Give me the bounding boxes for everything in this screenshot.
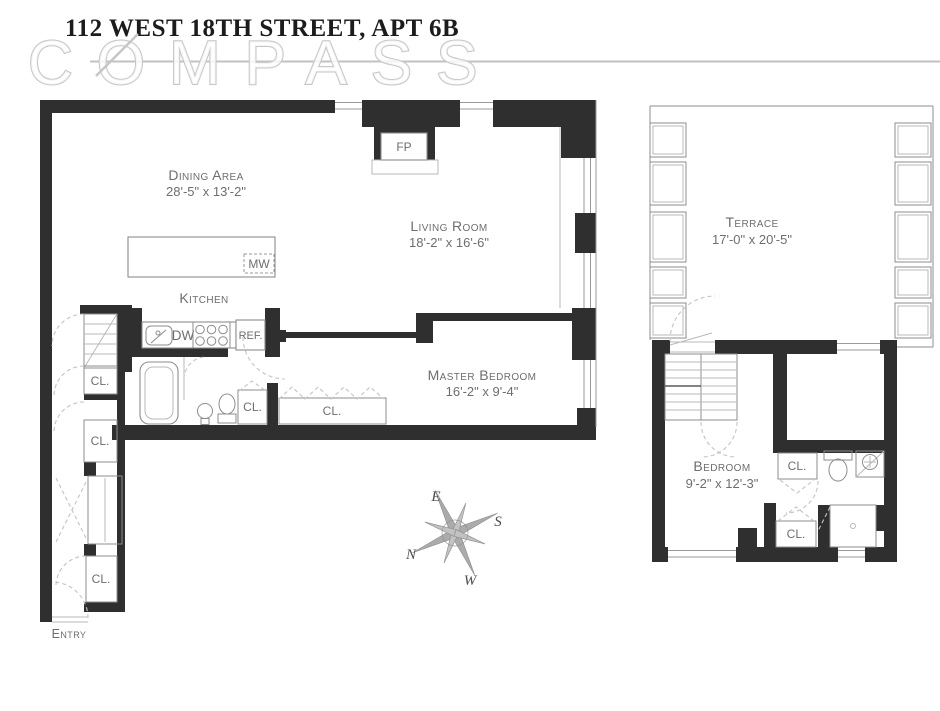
compass-east-label: E [430, 489, 440, 505]
planter-box [650, 123, 686, 157]
planter-box [895, 267, 931, 298]
terrace-dims: 17'-0" x 20'-5" [712, 232, 792, 247]
fireplace-label: FP [396, 140, 411, 154]
kitchen-counter: DW REF. [142, 320, 265, 350]
toilet-icon [218, 394, 236, 423]
living-room-label: Living Room [410, 218, 487, 234]
closet-cl1: CL. [84, 366, 117, 394]
planter-box [650, 303, 686, 338]
refrigerator-label: REF. [239, 330, 263, 342]
compass-north-label: N [405, 547, 417, 563]
svg-text:CL.: CL. [323, 404, 342, 418]
closet-bath: CL. [778, 453, 817, 479]
kitchen-label: Kitchen [179, 290, 228, 306]
dishwasher-label: DW [172, 328, 195, 343]
master-bedroom-dims: 16'-2" x 9'-4" [446, 384, 519, 399]
microwave-label: MW [248, 257, 270, 271]
vanity-sink-icon [856, 451, 884, 477]
pedestal-sink-icon [198, 404, 213, 425]
tall-closet [88, 476, 122, 544]
main-bathroom [140, 357, 236, 425]
dining-area-label: Dining Area [168, 167, 243, 183]
planter-box [895, 303, 931, 338]
closet-bedroom: CL. [776, 521, 816, 547]
terrace: Terrace 17'-0" x 20'-5" [650, 106, 933, 347]
entry-label: Entry [52, 627, 87, 641]
svg-text:CL.: CL. [788, 459, 807, 473]
kitchen-island: MW [128, 237, 275, 277]
floor-plan: 112 WEST 18TH STREET, APT 6B COMPASS [0, 0, 940, 711]
master-bedroom-label: Master Bedroom [428, 367, 537, 383]
planter-box [650, 162, 686, 205]
closet-master-small: CL. [238, 381, 267, 424]
bedroom-dims: 9'-2" x 12'-3" [686, 476, 759, 491]
staircase [665, 354, 737, 420]
closet-cl3: CL. [86, 556, 117, 602]
svg-text:CL.: CL. [243, 400, 262, 414]
bedroom-label: Bedroom [693, 458, 750, 474]
planter-box [895, 123, 931, 157]
living-room-dims: 18'-2" x 16'-6" [409, 235, 489, 250]
planter-boxes [650, 123, 931, 338]
svg-text:CL.: CL. [787, 527, 806, 541]
entry-door [52, 617, 88, 622]
planter-box [895, 162, 931, 205]
planter-box [895, 212, 931, 262]
planter-box [650, 267, 686, 298]
compass-west-label: W [464, 573, 478, 589]
planter-box [650, 212, 686, 262]
floor-plan-page: 112 WEST 18TH STREET, APT 6B COMPASS [0, 0, 940, 711]
refrigerator: REF. [236, 320, 265, 350]
compass-rose: E S N W [393, 471, 518, 596]
closet-master-long: CL. [279, 387, 386, 424]
bathtub-icon [140, 362, 178, 424]
stairs-main [84, 314, 117, 368]
compass-watermark: COMPASS [28, 29, 501, 98]
compass-south-label: S [494, 514, 502, 530]
terrace-label: Terrace [725, 214, 778, 230]
dining-area-dims: 28'-5" x 13'-2" [166, 184, 246, 199]
svg-text:CL.: CL. [91, 374, 110, 388]
svg-text:CL.: CL. [92, 572, 111, 586]
svg-text:CL.: CL. [91, 434, 110, 448]
main-unit-walls [40, 100, 596, 622]
toilet-icon [824, 451, 852, 481]
